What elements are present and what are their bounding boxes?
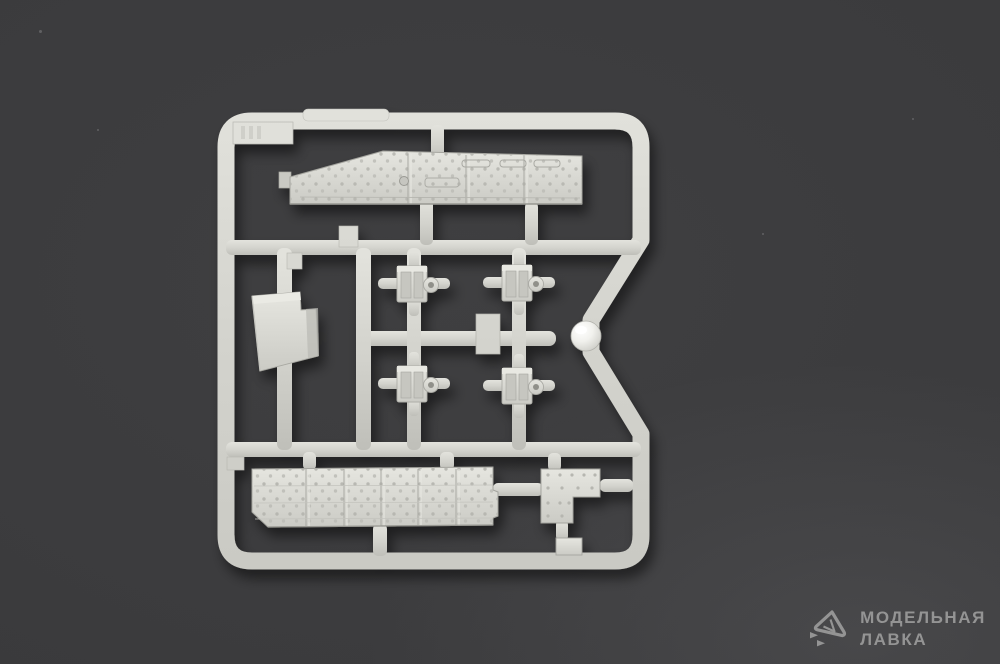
photo-scene: МОДЕЛЬНАЯ ЛАВКА (0, 0, 1000, 664)
mount-bracket-part-4 (483, 354, 555, 418)
equipment-box-part (252, 292, 319, 371)
small-square-plate-part (556, 538, 582, 555)
floor-panel-part (252, 467, 498, 527)
runner-stub (556, 521, 568, 540)
runner-stub (548, 453, 561, 471)
watermark-line2: ЛАВКА (860, 629, 986, 651)
runner-tab (287, 253, 302, 269)
mount-bracket-part-1 (378, 252, 450, 316)
runner-stub (525, 202, 538, 245)
center-pad-part (476, 314, 500, 354)
l-shaped-plate-part (541, 469, 600, 523)
runner-horizontal-middle (358, 331, 556, 346)
sprue-photo (0, 0, 1000, 664)
frame-strip (303, 109, 389, 121)
runner-vertical-left (356, 248, 371, 450)
watermark: МОДЕЛЬНАЯ ЛАВКА (808, 606, 986, 652)
runner-tab (339, 226, 358, 247)
runner-stub (303, 452, 316, 470)
polished-dome-part (571, 321, 601, 351)
runner-stub (493, 483, 543, 496)
hull-side-panel-part (279, 151, 582, 204)
mount-bracket-part-2 (483, 251, 555, 315)
runner-tab (227, 457, 244, 470)
runner-stub (600, 479, 633, 492)
runner-stub (373, 524, 387, 556)
mount-bracket-part-3 (378, 352, 450, 416)
watermark-line1: МОДЕЛЬНАЯ (860, 607, 986, 629)
paper-plane-icon (808, 606, 850, 652)
runner-stub (420, 200, 433, 245)
